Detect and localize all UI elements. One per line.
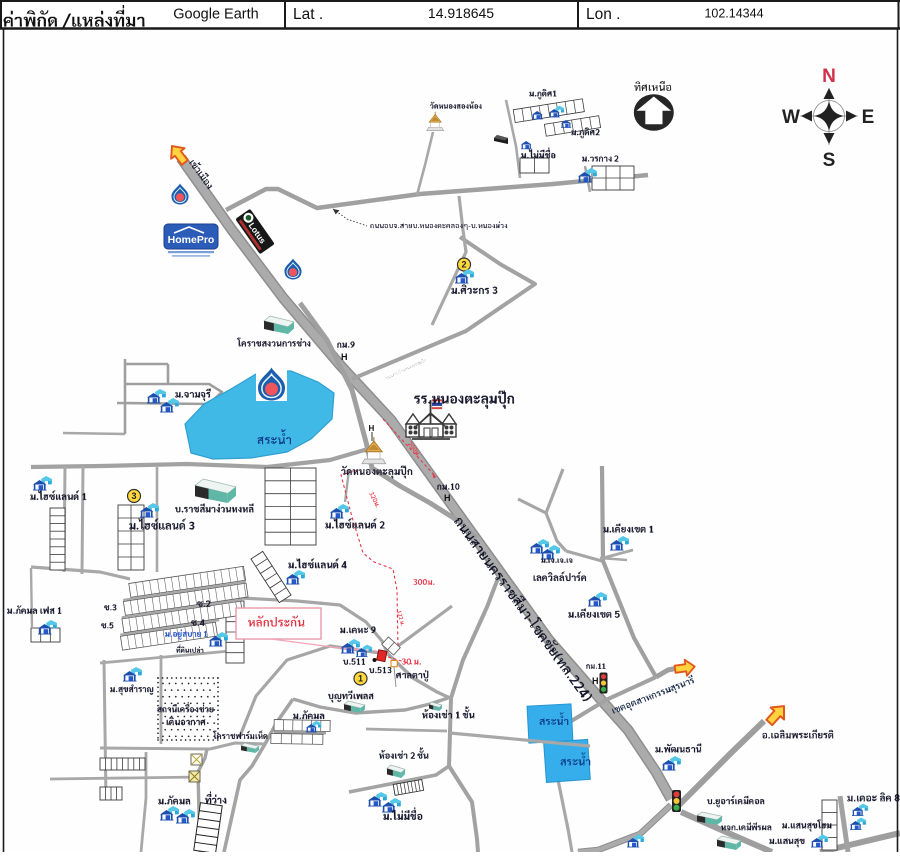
svg-text:H: H	[341, 352, 348, 362]
svg-text:HomePro: HomePro	[168, 234, 215, 246]
svg-text:N: N	[822, 66, 836, 87]
svg-text:1: 1	[358, 674, 363, 684]
svg-text:3: 3	[131, 491, 136, 501]
svg-text:E: E	[862, 107, 875, 128]
svg-text:102.14344: 102.14344	[704, 7, 763, 21]
svg-text:H: H	[369, 424, 375, 433]
svg-text:S: S	[823, 150, 836, 171]
svg-text:14.918645: 14.918645	[428, 5, 494, 21]
svg-text:Google Earth: Google Earth	[173, 7, 258, 23]
svg-text:Lat .: Lat .	[293, 6, 323, 23]
svg-text:W: W	[782, 107, 800, 128]
svg-text:H: H	[592, 676, 599, 686]
svg-text:2: 2	[461, 260, 466, 270]
svg-text:H: H	[444, 493, 451, 503]
svg-text:Lon .: Lon .	[586, 6, 620, 23]
